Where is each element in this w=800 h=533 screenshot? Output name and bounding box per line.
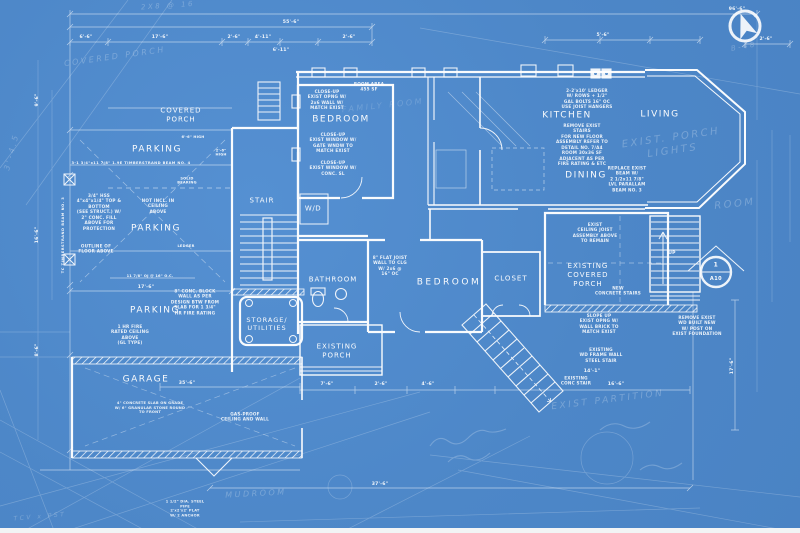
callout-detail-ref: A10 (710, 276, 722, 282)
room-label-parking-upper: PARKING (132, 144, 182, 155)
room-label-bedroom-main: BEDROOM (417, 277, 481, 288)
room-label-covered-porch: COVERED PORCH (160, 106, 201, 124)
dim-east-height: 17'-6" (730, 358, 736, 375)
main-stair-treads (240, 215, 297, 285)
dim-bottom-total: 37'-6" (372, 482, 389, 488)
dim-beam-vert: TC TIMBERSTRAND BEAM NO. 3 (61, 197, 65, 273)
dim-garage-width: 35'-6" (179, 381, 196, 387)
image-bottom-margin (0, 528, 800, 533)
dim-top-total: 96'-6" (729, 7, 746, 13)
note-slope-up: SLOPE UP EXIST OPNG W/ WALL BRICK TO MAT… (579, 313, 618, 335)
room-label-bathroom: BATHROOM (309, 276, 358, 285)
room-label-dining: DINING (565, 170, 607, 181)
room-label-kitchen: KITCHEN (542, 110, 592, 121)
sink-symbol (336, 289, 347, 300)
note-stair-removal: REMOVE EXIST STAIRS FOR NEW FLOOR ASSEMB… (556, 123, 608, 167)
callout-sheet-number: 1 (714, 261, 719, 269)
dim-ledger: LEDGER (177, 244, 194, 248)
note-steel-pipe: 1 1/2" DIA. STEEL PIPE 2'x2'x2' PLAT W/ … (166, 500, 205, 519)
up-arrow (659, 232, 667, 284)
blueprint-page: COVERED PORCH PARKING PARKING PARKING ST… (0, 0, 800, 533)
dim-joist-note: 11 7/8" OJ @ 16" O.C. (127, 274, 174, 278)
note-hss-column: 3/4" HSS 4"x4"x1/4" TOP & BOTTOM (SEE ST… (77, 193, 121, 231)
garage-door-notch (196, 458, 232, 476)
dim-left-a: 9'-6" (35, 93, 41, 106)
dim-porch-a: 7'-6" (320, 382, 333, 388)
note-ceiling-joist: EXIST CEILING JOIST ASSEMBLY ABOVE TO RE… (573, 222, 618, 244)
note-beam-replace: REPLACE EXIST BEAM W/ 2 1/2x11 7/8" LVL … (608, 165, 647, 192)
note-ceiling-gap: NOT INCL. IN CEILING ABOVE (142, 198, 175, 214)
note-fire-ceiling: 1 HR FIRE RATED CEILING ABOVE (GL TYPE) (111, 324, 149, 346)
dim-south-a: 14'-1" (584, 369, 601, 375)
room-label-existing-covered-porch: EXISTING COVERED PORCH (567, 262, 608, 288)
note-floor-outline: OUTLINE OF FLOOR ABOVE (78, 244, 113, 255)
dim-left-c: 8'-6" (35, 343, 41, 356)
dim-seg-a: 6'-6" (79, 35, 92, 41)
dim-porch-b: 2'-6" (374, 382, 387, 388)
note-concrete-stairs: NEW CONCRETE STAIRS (595, 286, 641, 297)
dim-seg-b: 17'-6" (152, 35, 169, 41)
note-block-wall: 8" CONC. BLOCK WALL AS PER DESIGN BTW FR… (171, 288, 219, 315)
dim-beam-note: 3-1 3/4"x11 7/8" 1.9E TIMBERSTRAND BEAM … (71, 161, 190, 165)
toilet-symbol (311, 288, 325, 307)
note-bedroom-opening: CLOSE-UP EXIST OPNG W/ 2x6 WALL W/ MATCH… (308, 89, 347, 111)
dim-seg-e: 6'-11" (273, 48, 290, 54)
note-ledger-detail: 2-2'x10' LEDGER W/ ROWS + 1/2" GAL BOLTS… (562, 88, 613, 110)
room-label-existing-porch: EXISTING PORCH (317, 342, 358, 360)
dim-right-a: 5'-6" (596, 33, 609, 39)
dim-right-b: 2'-6" (759, 37, 772, 43)
room-label-closet: CLOSET (494, 275, 527, 284)
dim-seg-d: 4'-11" (255, 35, 272, 41)
note-porch-post: REMOVE EXIST WD BUILT NEW W/ POST ON EXI… (672, 315, 721, 337)
door-arcs (334, 128, 530, 332)
dim-top-span: 55'-6" (283, 20, 300, 26)
note-flat-joist: 8" FLAT JOIST WALL TO CLG W/ 2x6 @ 16" O… (373, 255, 407, 277)
dim-height-a: 6'-6" HIGH (181, 135, 204, 139)
room-label-garage: GARAGE (123, 374, 170, 385)
note-garage-slab: 4" CONCRETE SLAB ON GRADE W/ 6" GRANULAR… (115, 401, 185, 415)
room-label-stair: STAIR (250, 197, 275, 206)
note-bedroom-window-a: CLOSE-UP EXIST WINDOW W/ GATE WNDW TO MA… (310, 132, 357, 154)
porch-steps (300, 367, 382, 371)
note-gasproof: GAS-PROOF CEILING AND WALL (221, 412, 269, 423)
note-bedroom-window-b: CLOSE-UP EXIST WINDOW W/ CONC. SL (310, 160, 357, 176)
note-conc-stair: EXISTING CONC STAIR (561, 376, 591, 387)
dim-seg-f: 2'-6" (342, 35, 355, 41)
dim-left-b: 16'-6" (35, 227, 41, 244)
room-label-parking-middle: PARKING (131, 223, 181, 234)
dim-south-b: 16'-6" (608, 382, 625, 388)
dim-seg-c: 2'-6" (227, 35, 240, 41)
dim-height-b: 2'-6" HIGH (215, 149, 226, 158)
stair-up-label: UP (668, 251, 676, 257)
north-arrow-icon (730, 11, 760, 41)
room-label-storage-utilities: STORAGE/ UTILITIES (246, 316, 287, 332)
dim-solid-bearing: SOLID BEARING (177, 177, 196, 186)
diagonal-stair (462, 304, 563, 412)
room-label-bedroom-upper: BEDROOM (312, 114, 369, 125)
note-frame-wall: EXISTING WD FRAME WALL STEEL STAIR (580, 347, 623, 363)
dim-parking-width: 17'-6" (138, 285, 155, 291)
dim-porch-c: 4'-6" (421, 382, 434, 388)
room-label-living: LIVING (640, 109, 679, 120)
room-label-washer-dryer: W/D (305, 205, 321, 214)
closet-walls (482, 252, 540, 316)
note-room-area: ROOM AREA 455 SF (354, 82, 384, 93)
